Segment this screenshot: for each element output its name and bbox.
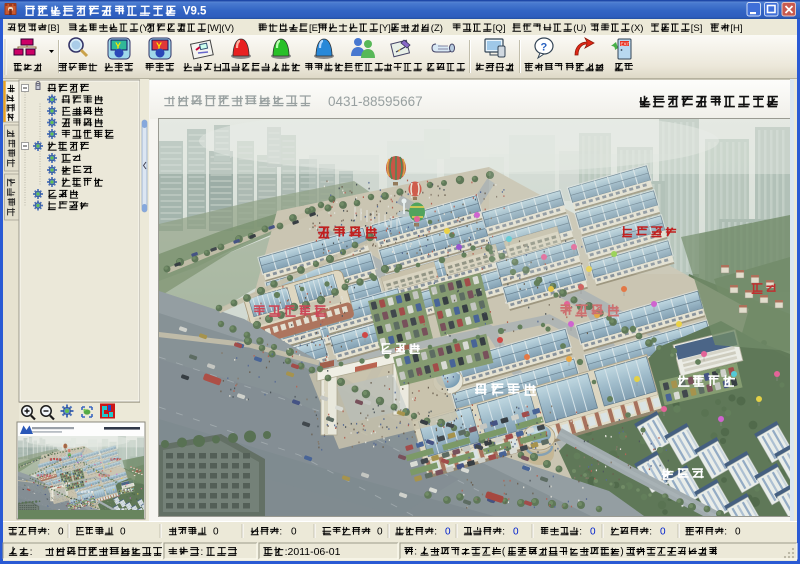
svg-text::: : — [200, 546, 203, 558]
svg-text:?: ? — [541, 42, 548, 54]
svg-text:0: 0 — [377, 527, 383, 538]
svg-text::: : — [724, 526, 727, 537]
svg-text:0: 0 — [513, 527, 519, 538]
svg-text:[B]: [B] — [48, 23, 60, 34]
svg-text:0431-88595667: 0431-88595667 — [328, 94, 423, 109]
svg-text::2011-06-01: :2011-06-01 — [285, 546, 341, 558]
svg-text::: : — [30, 546, 33, 558]
svg-text:0: 0 — [590, 527, 596, 538]
svg-text:(X): (X) — [631, 23, 644, 34]
svg-text:0: 0 — [445, 527, 451, 538]
svg-text:[E]: [E] — [309, 23, 321, 34]
svg-text:[Y]: [Y] — [379, 23, 391, 34]
svg-text:0: 0 — [660, 527, 666, 538]
svg-text::: : — [47, 526, 50, 537]
svg-text::: : — [414, 547, 417, 558]
svg-text:0: 0 — [120, 527, 126, 538]
svg-text:(U): (U) — [573, 23, 586, 34]
svg-text:V9.5: V9.5 — [183, 6, 207, 18]
svg-text:0: 0 — [213, 527, 219, 538]
svg-text:[S]: [S] — [691, 23, 703, 34]
svg-text:0: 0 — [58, 527, 64, 538]
svg-text::: : — [579, 526, 582, 537]
svg-text:EXIT: EXIT — [621, 42, 631, 47]
svg-text:): ) — [620, 547, 623, 558]
svg-text::: : — [502, 526, 505, 537]
svg-text:[Q]: [Q] — [493, 23, 506, 34]
svg-text:(Z): (Z) — [431, 23, 443, 34]
svg-text:0: 0 — [735, 527, 741, 538]
svg-text:[W](V): [W](V) — [207, 23, 234, 34]
svg-text::: : — [649, 526, 652, 537]
svg-text::: : — [434, 526, 437, 537]
svg-text::: : — [279, 526, 282, 537]
svg-text:0: 0 — [291, 527, 297, 538]
svg-text:[H]: [H] — [730, 23, 742, 34]
svg-text:(Y): (Y) — [139, 23, 152, 34]
